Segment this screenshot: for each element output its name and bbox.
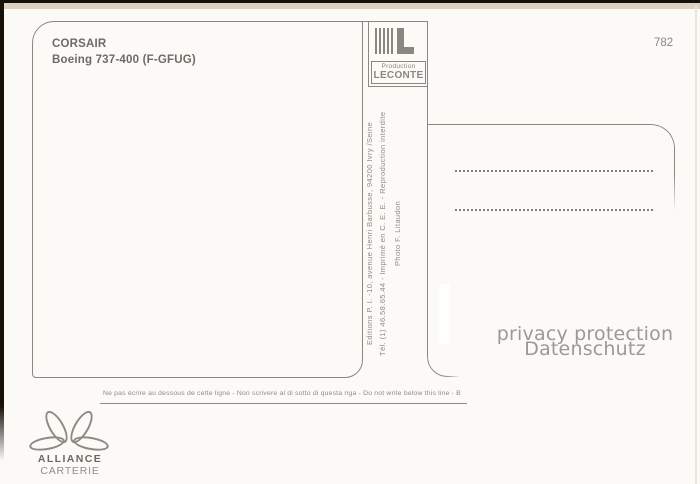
imprint-editions: Editions P. I. -10, avenue Henri Barbuss… bbox=[363, 92, 376, 375]
brand-tagline: CARTERIE bbox=[26, 465, 114, 477]
address-area-frame bbox=[428, 124, 675, 214]
alliance-carterie-logo: ALLIANCE CARTERIE bbox=[26, 407, 114, 479]
no-write-rule bbox=[100, 403, 467, 404]
card-number: 782 bbox=[654, 37, 673, 49]
brand-name: ALLIANCE bbox=[26, 453, 114, 465]
scan-light-artifact bbox=[439, 284, 450, 344]
address-dotted-line-1 bbox=[455, 170, 653, 172]
leconte-label-top: Production bbox=[372, 63, 425, 70]
card-subtitle: Boeing 737-400 (F-GFUG) bbox=[52, 52, 196, 68]
leconte-logo-icon bbox=[375, 28, 414, 54]
scan-edge-right bbox=[695, 6, 697, 484]
leconte-l-mark-icon bbox=[397, 28, 414, 54]
no-write-caption: Ne pas écrire au dessous de cette ligne … bbox=[103, 390, 463, 397]
leconte-logo-box: Production LECONTE bbox=[368, 21, 428, 87]
alliance-butterfly-icon bbox=[28, 434, 66, 453]
picture-description-frame bbox=[32, 21, 363, 378]
alliance-butterfly-icon bbox=[72, 434, 110, 453]
imprint-tel: Tél. (1) 46.58.65.44 - Imprimé en C. E. … bbox=[376, 92, 390, 375]
leconte-label-bottom: LECONTE bbox=[372, 70, 425, 81]
card-title: CORSAIR bbox=[52, 36, 196, 52]
scan-edge-left bbox=[0, 3, 4, 461]
publisher-imprint: Editions P. I. -10, avenue Henri Barbuss… bbox=[363, 92, 405, 375]
leconte-label-box: Production LECONTE bbox=[371, 61, 426, 84]
scan-cream-band bbox=[0, 3, 700, 9]
address-dotted-line-2 bbox=[455, 209, 653, 211]
postcard-back: CORSAIR Boeing 737-400 (F-GFUG) 782 Prod… bbox=[0, 0, 700, 484]
card-title-block: CORSAIR Boeing 737-400 (F-GFUG) bbox=[52, 36, 196, 68]
imprint-photo: Photo F. Litaudon bbox=[390, 92, 405, 375]
privacy-watermark: privacy protection Datenschutz bbox=[462, 327, 700, 356]
